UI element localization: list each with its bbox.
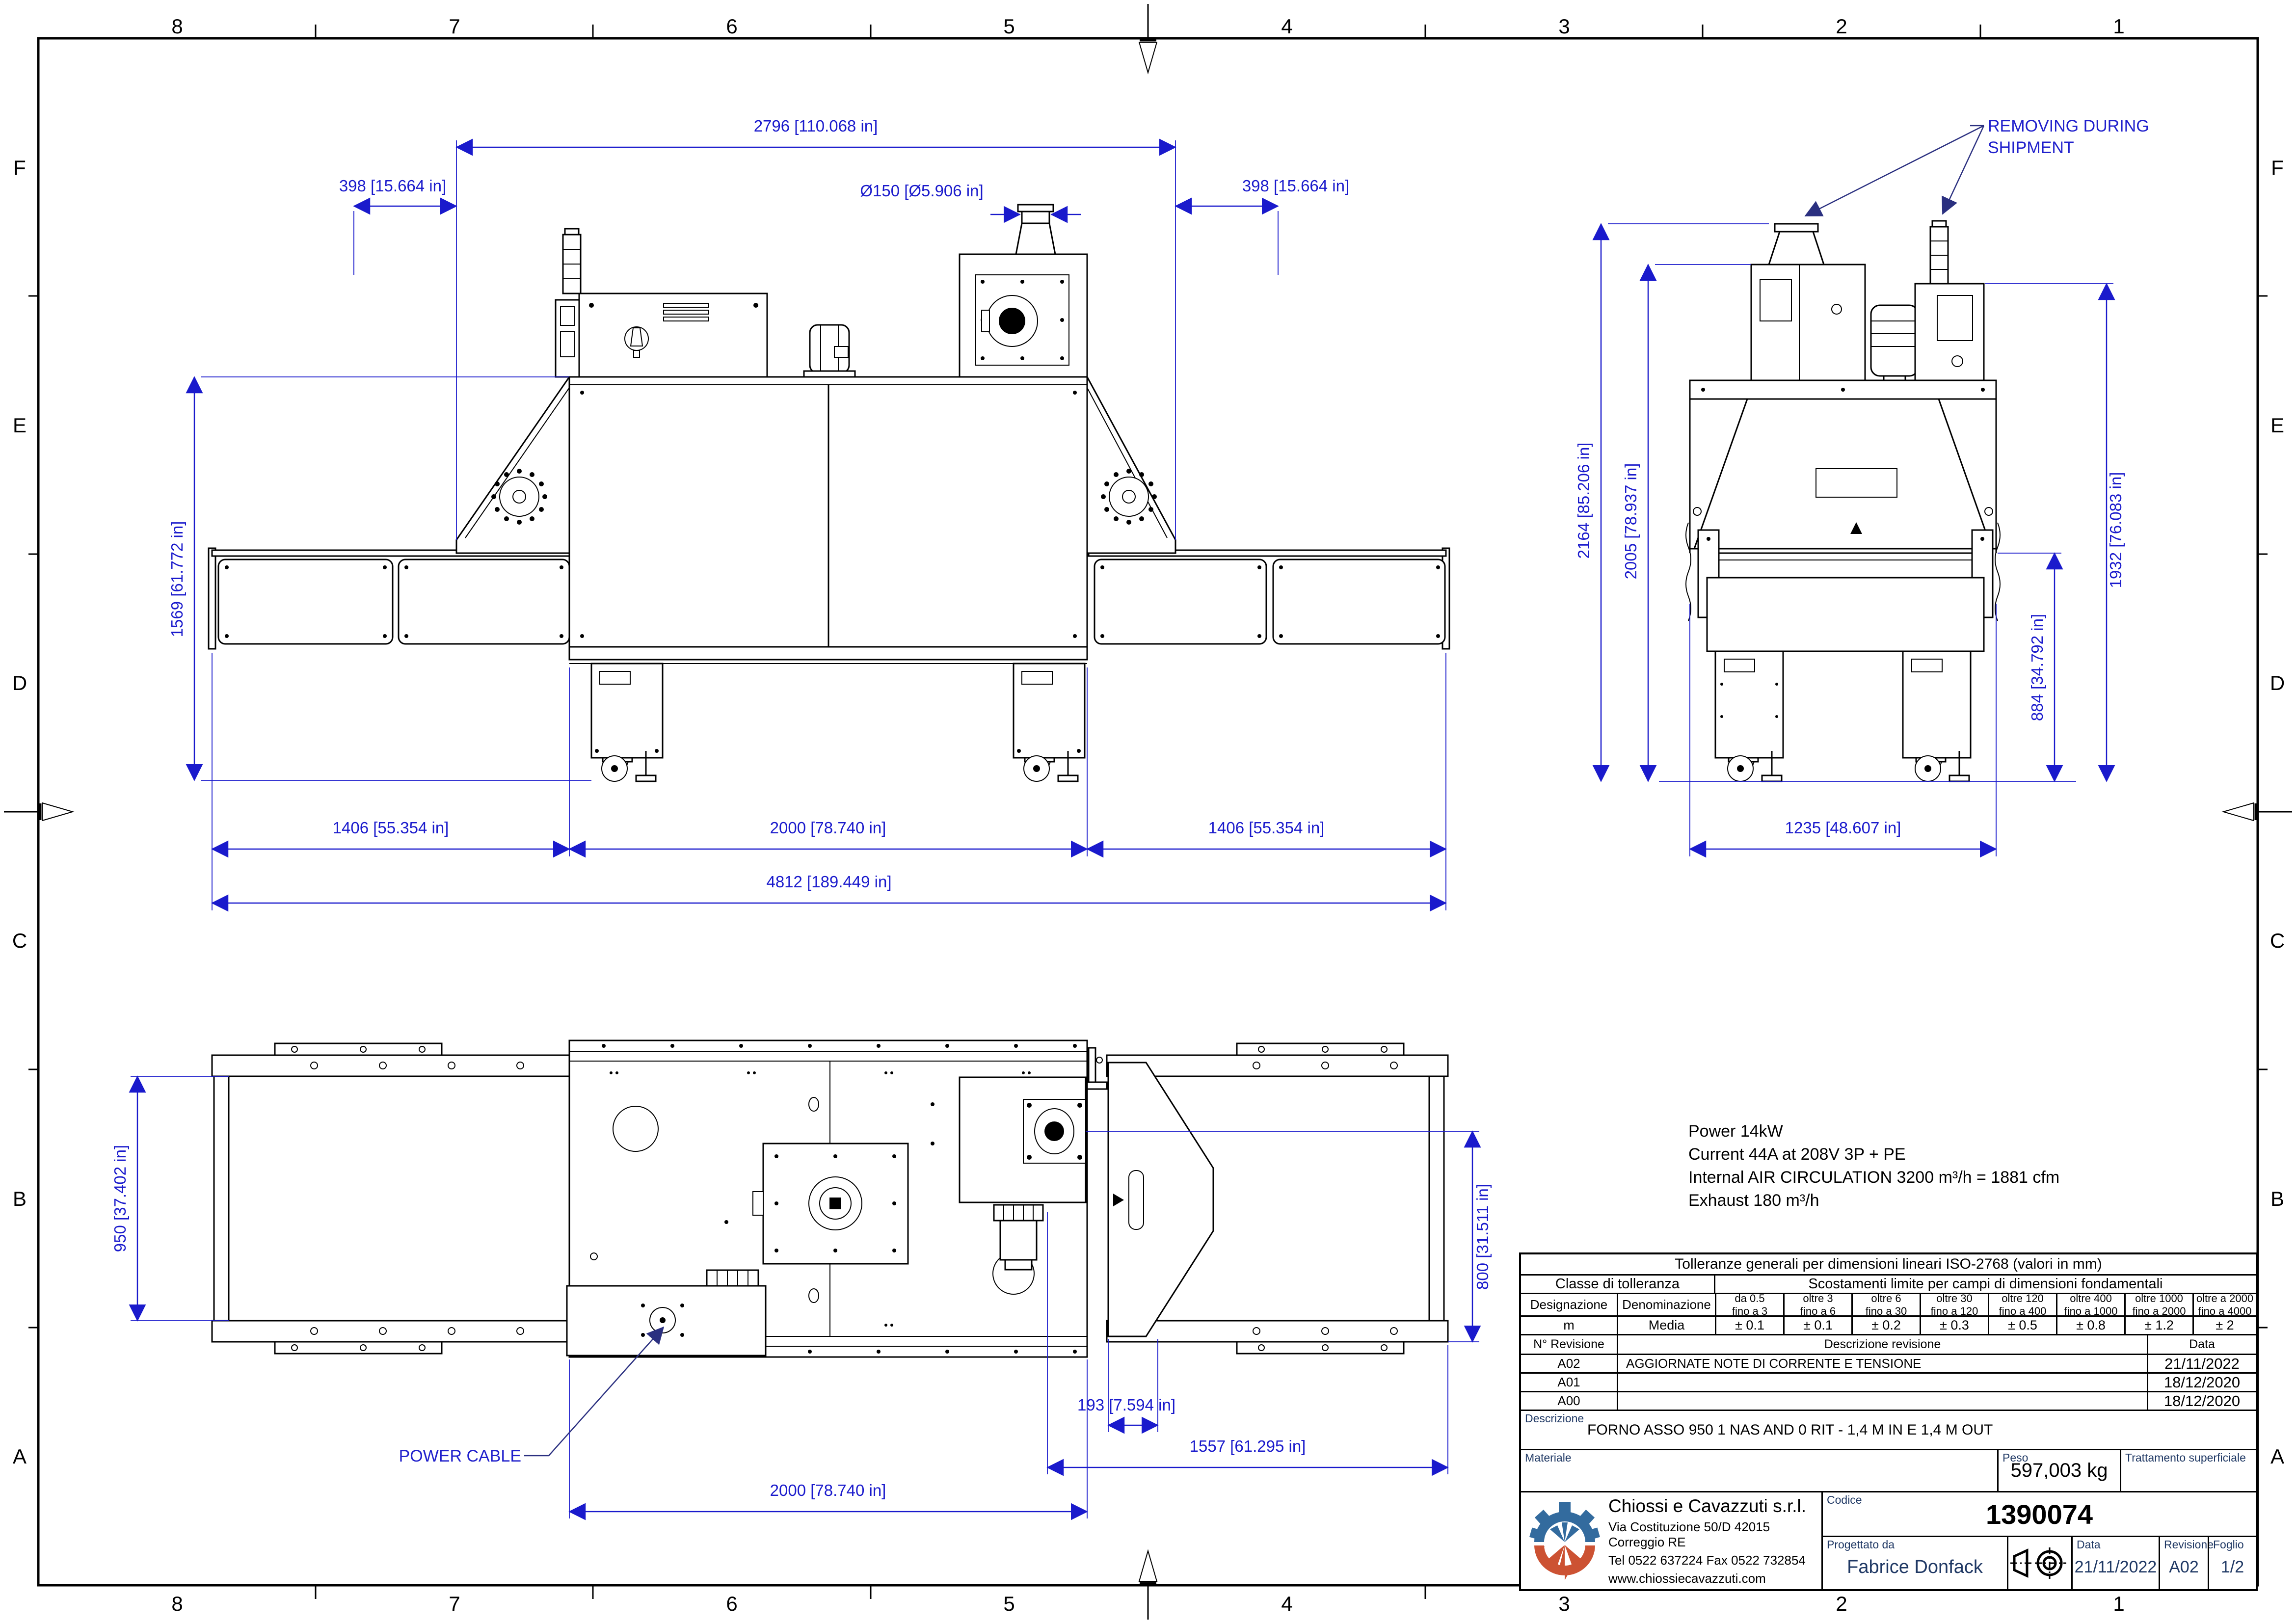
dim-front-oven-length: 2000 [78.740 in] (770, 819, 886, 837)
tolerance-designation: m (1521, 1317, 1617, 1334)
revision-description: AGGIORNATE NOTE DI CORRENTE E TENSIONE (1617, 1355, 2147, 1372)
tolerance-range: da 0.5fino a 3 (1715, 1294, 1783, 1315)
front-blower-box (960, 254, 1087, 377)
dim-front-right-conveyor: 1406 [55.354 in] (1208, 819, 1325, 837)
tolerance-class-header: Classe di tolleranza (1521, 1276, 1714, 1293)
tolerance-col-denominazione: Denominazione (1617, 1294, 1715, 1315)
tolerance-value: ± 0.5 (1988, 1317, 2056, 1334)
logo-blue-impeller (1529, 1502, 1600, 1542)
grid-col-label: 4 (1281, 1592, 1292, 1615)
front-left-conveyor (209, 548, 569, 649)
company-name: Chiossi e Cavazzuti s.r.l. (1608, 1496, 1821, 1517)
grid-row-label: B (13, 1187, 27, 1210)
revision-label: Revisione (2164, 1539, 2214, 1550)
revision-col-description: Descrizione revisione (1617, 1335, 2147, 1354)
tolerance-range: oltre 1000fino a 2000 (2124, 1294, 2192, 1315)
grid-row-label: D (12, 671, 27, 694)
range-line1: oltre a 2000 (2196, 1294, 2253, 1305)
dim-front-left-offset: 398 [15.664 in] (339, 177, 446, 195)
tolerance-range: oltre 120fino a 400 (1988, 1294, 2056, 1315)
revision-number: A00 (1521, 1392, 1617, 1410)
tolerance-value-row: m Media ± 0.1 ± 0.1 ± 0.2 ± 0.3 ± 0.5 ± … (1521, 1315, 2256, 1334)
logo-red-impeller (1534, 1545, 1595, 1580)
tolerance-range: oltre 6fino a 30 (1851, 1294, 1920, 1315)
sheet-label: Foglio (2213, 1539, 2244, 1550)
grid-col-label: 5 (1003, 1592, 1015, 1615)
range-line2: fino a 6 (1800, 1305, 1836, 1316)
grid-row-label: A (2270, 1445, 2284, 1468)
range-line1: oltre 6 (1871, 1294, 1901, 1305)
tolerance-header-row: Classe di tolleranza Scostamenti limite … (1521, 1274, 2256, 1293)
projection-symbol-cell (2007, 1537, 2071, 1589)
grid-col-label: 3 (1558, 1592, 1570, 1615)
tolerance-value: ± 0.3 (1920, 1317, 1988, 1334)
grid-col-label: 8 (171, 15, 183, 38)
grid-col-label: 3 (1558, 15, 1570, 38)
range-line1: oltre 400 (2070, 1294, 2112, 1305)
treatment-label: Trattamento superficiale (2125, 1452, 2246, 1464)
company-logo (1528, 1501, 1602, 1581)
description-row: Descrizione FORNO ASSO 950 1 NAS AND 0 R… (1521, 1410, 2256, 1449)
plan-view: 950 [37.402 in] 800 [31.511 in] 193 [7.5… (111, 1040, 1492, 1518)
revision-header-row: N° Revisione Descrizione revisione Data (1521, 1334, 2256, 1354)
dim-plan-offset: 193 [7.594 in] (1077, 1396, 1175, 1414)
plan-transition-plate (1108, 1063, 1213, 1336)
grid-col-label: 4 (1281, 15, 1292, 38)
dim-front-left-conveyor: 1406 [55.354 in] (333, 819, 449, 837)
grid-row-label: D (2270, 671, 2285, 694)
tolerance-value: ± 1.2 (2124, 1317, 2192, 1334)
tolerance-range: oltre a 2000fino a 4000 (2192, 1294, 2256, 1315)
range-line2: fino a 400 (1999, 1305, 2047, 1316)
grid-col-label: 6 (726, 1592, 737, 1615)
front-exhaust-stack (1016, 205, 1055, 254)
tolerance-value: ± 0.2 (1851, 1317, 1920, 1334)
revision-row: A02 AGGIORNATE NOTE DI CORRENTE E TENSIO… (1521, 1354, 2256, 1372)
front-signal-tower (563, 229, 581, 293)
drawing-description: FORNO ASSO 950 1 NAS AND 0 RIT - 1,4 M I… (1587, 1422, 1993, 1438)
tolerance-title: Tolleranze generali per dimensioni linea… (1521, 1254, 2256, 1274)
dim-front-total-length: 4812 [189.449 in] (766, 873, 891, 891)
tolerance-value: ± 0.8 (2056, 1317, 2124, 1334)
power-cable-label: POWER CABLE (399, 1447, 521, 1465)
plan-left-conveyor (212, 1043, 569, 1354)
end-control-box (1751, 265, 1865, 380)
grid-row-label: A (13, 1445, 27, 1468)
grid-col-label: 6 (726, 15, 737, 38)
removing-shipment-label-line2: SHIPMENT (1988, 138, 2074, 157)
codice-value: 1390074 (1986, 1498, 2093, 1530)
range-line2: fino a 3 (1732, 1305, 1767, 1316)
material-label: Materiale (1525, 1452, 1572, 1464)
end-signal-tower (1930, 221, 1948, 284)
title-block: Tolleranze generali per dimensioni linea… (1519, 1252, 2258, 1591)
front-casters (602, 751, 1078, 781)
grid-row-label: E (13, 414, 27, 437)
first-angle-projection-icon (2010, 1544, 2069, 1583)
tolerance-value: ± 2 (2192, 1317, 2256, 1334)
dim-plan-right-width: 800 [31.511 in] (1473, 1184, 1492, 1290)
codice-label: Codice (1827, 1494, 1862, 1506)
material-row: Materiale Peso 597,003 kg Trattamento su… (1521, 1449, 2256, 1491)
range-line2: fino a 30 (1866, 1305, 1907, 1316)
grid-col-label: 8 (171, 1592, 183, 1615)
dim-plan-belt-width: 950 [37.402 in] (111, 1145, 129, 1252)
tolerance-value: ± 0.1 (1715, 1317, 1783, 1334)
end-exhaust-funnel (1769, 224, 1824, 265)
revision-description (1617, 1392, 2147, 1410)
range-line1: oltre 120 (2002, 1294, 2044, 1305)
front-belt-motor (804, 325, 855, 377)
grid-row-label: C (12, 929, 27, 952)
company-address: Via Costituzione 50/D 42015 Correggio RE (1608, 1519, 1821, 1550)
revision-value: A02 (2169, 1558, 2199, 1577)
note-exhaust: Exhaust 180 m³/h (1688, 1189, 2059, 1212)
revision-number: A01 (1521, 1374, 1617, 1391)
note-current: Current 44A at 208V 3P + PE (1688, 1143, 2059, 1166)
designer-value: Fabrice Donfack (1847, 1557, 1983, 1578)
revision-date: 18/12/2020 (2147, 1374, 2256, 1391)
range-line2: fino a 1000 (2064, 1305, 2118, 1316)
tolerance-range-row: Designazione Denominazione da 0.5fino a … (1521, 1293, 2256, 1315)
range-line2: fino a 120 (1931, 1305, 1978, 1316)
front-legs (591, 664, 1085, 758)
grid-row-label: B (2270, 1187, 2284, 1210)
note-air-circulation: Internal AIR CIRCULATION 3200 m³/h = 188… (1688, 1166, 2059, 1189)
dim-end-total-height: 2164 [85.206 in] (1575, 443, 1593, 559)
front-view: 2796 [110.068 in] 398 [15.664 in] 398 [1… (168, 117, 1449, 910)
note-power: Power 14kW (1688, 1120, 2059, 1143)
tolerance-title-row: Tolleranze generali per dimensioni linea… (1521, 1254, 2256, 1274)
company-cell: Chiossi e Cavazzuti s.r.l. Via Costituzi… (1521, 1492, 1821, 1589)
tolerance-range: oltre 400fino a 1000 (2056, 1294, 2124, 1315)
front-right-conveyor (1089, 548, 1449, 649)
dim-front-height: 1569 [61.772 in] (168, 521, 186, 638)
end-motor (1871, 305, 1918, 381)
technical-notes: Power 14kW Current 44A at 208V 3P + PE I… (1688, 1120, 2059, 1212)
revision-col-date: Data (2147, 1335, 2256, 1354)
front-right-hood (1087, 377, 1175, 553)
dim-end-belt-height: 884 [34.792 in] (2028, 614, 2046, 721)
front-left-hood (456, 377, 569, 553)
revision-col-number: N° Revisione (1521, 1335, 1617, 1354)
end-body (1690, 380, 1996, 553)
range-line1: oltre 1000 (2135, 1294, 2183, 1305)
dim-plan-right-length: 1557 [61.295 in] (1190, 1437, 1306, 1455)
tolerance-range: oltre 3fino a 6 (1783, 1294, 1851, 1315)
dim-front-top-width: 2796 [110.068 in] (754, 117, 878, 135)
tolerance-col-designazione: Designazione (1521, 1294, 1617, 1315)
dim-end-width: 1235 [48.607 in] (1785, 819, 1901, 837)
revision-row: A00 18/12/2020 (1521, 1391, 2256, 1410)
company-phone: Tel 0522 637224 Fax 0522 732854 (1608, 1553, 1821, 1568)
grid-col-label: 5 (1003, 15, 1015, 38)
grid-col-label: 7 (449, 1592, 460, 1615)
date-label: Data (2077, 1539, 2101, 1550)
grid-row-label: F (13, 156, 26, 179)
grid-row-label: C (2270, 929, 2285, 952)
dim-exhaust-diameter: Ø150 [Ø5.906 in] (860, 182, 983, 200)
company-codice-row: Chiossi e Cavazzuti s.r.l. Via Costituzi… (1521, 1491, 2256, 1589)
dim-front-right-offset: 398 [15.664 in] (1242, 177, 1349, 195)
grid-col-label: 2 (1836, 15, 1847, 38)
revision-row: A01 18/12/2020 (1521, 1372, 2256, 1391)
end-legs (1715, 651, 1971, 758)
removing-shipment-label-line1: REMOVING DURING (1988, 117, 2149, 135)
weight-label: Peso (2002, 1452, 2028, 1464)
grid-col-label: 7 (449, 15, 460, 38)
grid-col-label: 1 (2113, 1592, 2124, 1615)
company-website: www.chiossiecavazzuti.com (1608, 1571, 1821, 1586)
grid-row-label: F (2271, 156, 2284, 179)
dim-end-box-height: 2005 [78.937 in] (1622, 463, 1640, 580)
designer-label: Progettato da (1827, 1539, 1895, 1550)
grid-col-label: 2 (1836, 1592, 1847, 1615)
range-line1: oltre 3 (1803, 1294, 1833, 1305)
dim-plan-oven-length: 2000 [78.740 in] (770, 1481, 886, 1499)
dim-end-right-height: 1932 [76.083 in] (2107, 472, 2125, 588)
description-label: Descrizione (1525, 1412, 1584, 1424)
sheet-value: 1/2 (2221, 1558, 2244, 1577)
grid-col-label: 1 (2113, 15, 2124, 38)
end-belt-assembly (1686, 523, 2000, 651)
grid-row-label: E (2270, 414, 2284, 437)
end-view: 2164 [85.206 in] 2005 [78.937 in] 1932 [… (1575, 117, 2149, 856)
removing-shipment-annotation: REMOVING DURING SHIPMENT (1805, 117, 2149, 216)
end-bracket-box (1915, 284, 1984, 380)
front-display-panel (556, 300, 579, 377)
range-line2: fino a 2000 (2133, 1305, 2186, 1316)
range-line2: fino a 4000 (2198, 1305, 2252, 1316)
range-line1: da 0.5 (1735, 1294, 1764, 1305)
tolerance-denomination: Media (1617, 1317, 1715, 1334)
revision-description (1617, 1374, 2147, 1391)
date-value: 21/11/2022 (2075, 1558, 2157, 1577)
tolerance-limits-header: Scostamenti limite per campi di dimensio… (1714, 1276, 2256, 1293)
range-line1: oltre 30 (1936, 1294, 1972, 1305)
front-oven-body (569, 377, 1087, 664)
revision-number: A02 (1521, 1355, 1617, 1372)
revision-date: 21/11/2022 (2147, 1355, 2256, 1372)
tolerance-value: ± 0.1 (1783, 1317, 1851, 1334)
front-control-box (579, 293, 767, 377)
tolerance-range: oltre 30fino a 120 (1920, 1294, 1988, 1315)
revision-date: 18/12/2020 (2147, 1392, 2256, 1410)
